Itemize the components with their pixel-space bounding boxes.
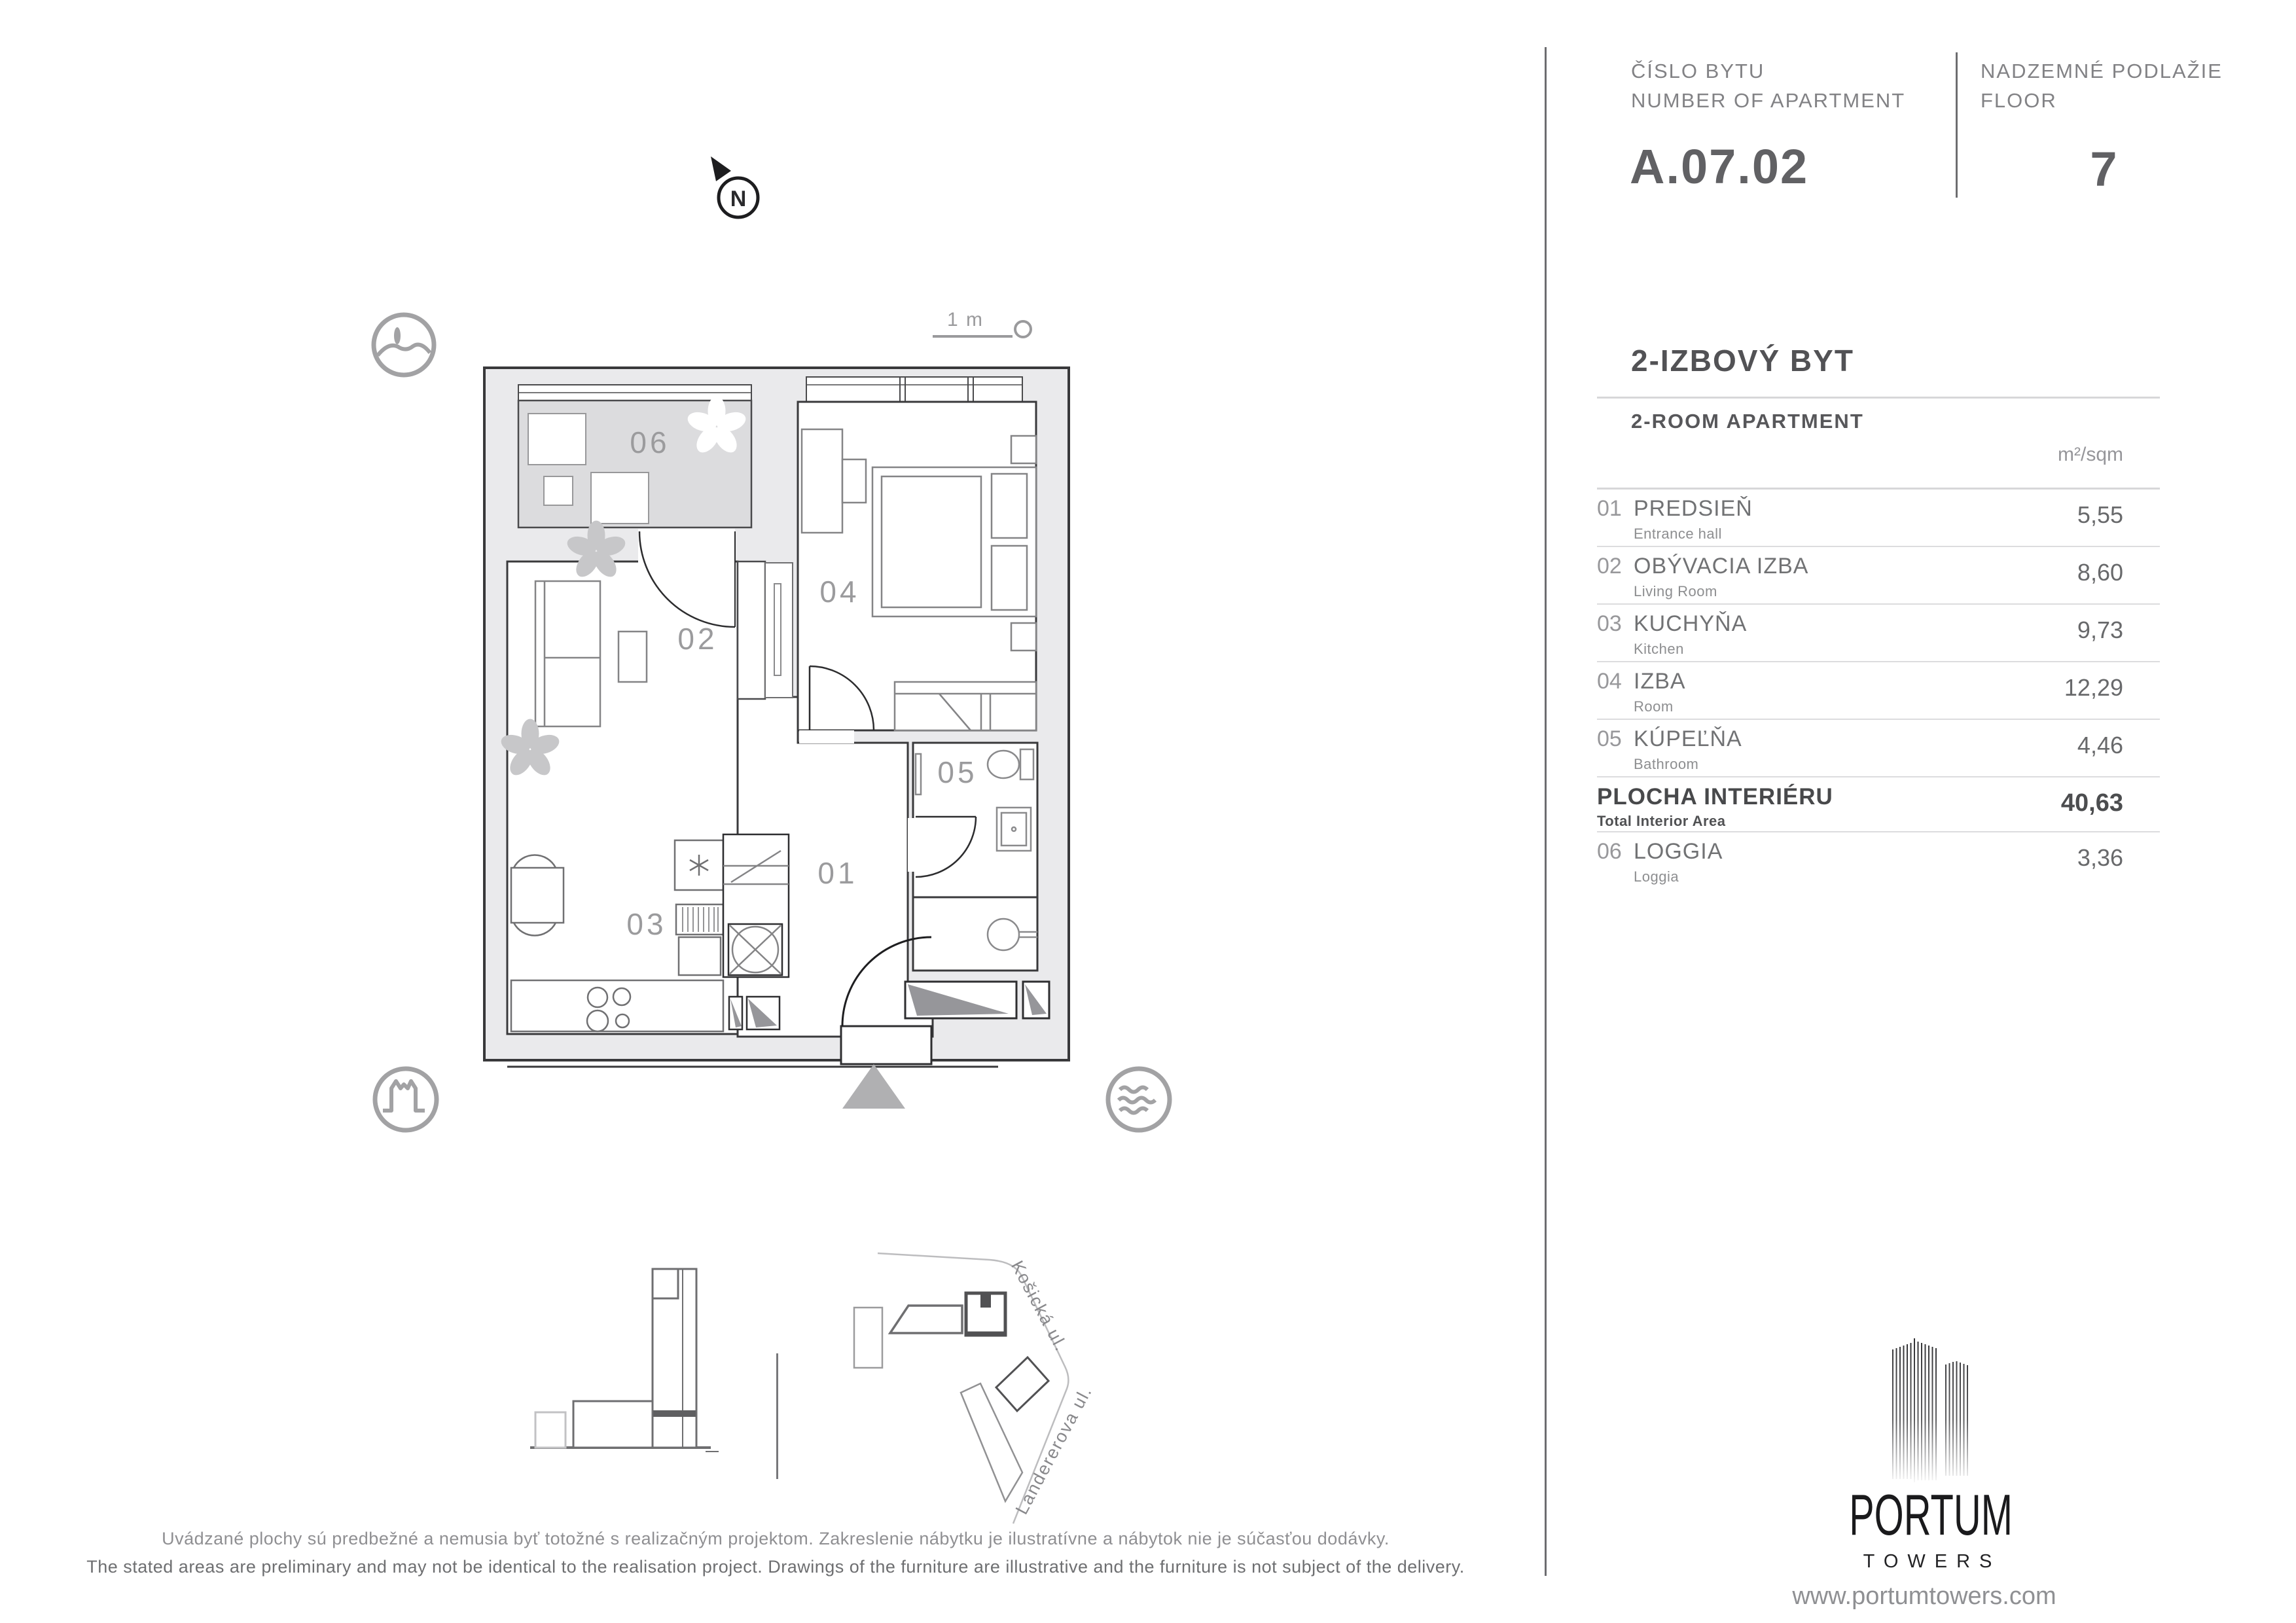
floorplan-sheet: { "header": { "apartment_no_label_sk": "… — [0, 0, 2296, 1623]
tower-elevation — [524, 1257, 720, 1459]
loggia-door-opening — [638, 529, 735, 563]
compass-north-letter: N — [730, 187, 747, 211]
bed-mattress — [882, 476, 981, 607]
low-windows — [905, 982, 1049, 1018]
logo-subtitle: TOWERS — [1863, 1551, 2001, 1572]
bedroom-desk — [802, 429, 842, 533]
title-rule — [1597, 397, 2160, 399]
site-map: Košická ul. Landererova ul. — [838, 1243, 1119, 1538]
site-portum-tower — [966, 1293, 1005, 1335]
apartment-type-title-sk: 2-IZBOVÝ BYT — [1631, 343, 1854, 378]
hill-landmark-icon — [370, 311, 439, 380]
room-label-02: 02 — [677, 622, 717, 656]
river-landmark-icon — [1103, 1063, 1175, 1135]
bedroom-chair — [842, 459, 866, 503]
dishwasher — [676, 904, 723, 935]
site-building-trapezoid — [890, 1306, 962, 1333]
apartment-number-label: ČÍSLO BYTUNUMBER OF APARTMENT — [1631, 56, 1905, 115]
corridor-cabinet-wall — [738, 562, 793, 699]
north-compass-icon: N — [700, 147, 785, 232]
site-building-kite — [996, 1357, 1049, 1411]
floor-label: NADZEMNÉ PODLAŽIEFLOOR — [1981, 56, 2223, 115]
area-value: 3,36 — [2077, 839, 2160, 890]
entrance-arrow — [842, 1064, 905, 1109]
kitchen-cabinet — [679, 937, 721, 975]
scale-bar: 1 m — [926, 301, 1044, 347]
bathroom-door-opening — [908, 818, 916, 872]
elevation-tower-notch — [653, 1269, 678, 1298]
bedroom-wardrobe — [895, 682, 1036, 730]
portum-towers-logo: PORTUM TOWERS — [1852, 1322, 2075, 1584]
washbasin-drain — [1012, 827, 1016, 831]
table-row-entrance-hall: 01 PREDSIEŇ Entrance hall 5,55 — [1597, 490, 2160, 547]
total-area-value: 40,63 — [2061, 784, 2160, 831]
washing-machine — [988, 919, 1019, 950]
room-label-06: 06 — [630, 425, 670, 459]
disclaimer-sk: Uvádzané plochy sú predbežné a nemusia b… — [26, 1529, 1525, 1549]
apartment-type-title-en: 2-ROOM APARTMENT — [1631, 410, 1864, 433]
coffee-table — [619, 632, 647, 682]
area-value: 4,46 — [2077, 726, 2160, 776]
room-label-01: 01 — [817, 856, 857, 890]
site-building — [854, 1308, 882, 1368]
room-bedroom: 04 — [798, 402, 1036, 730]
toilet-bowl — [988, 751, 1019, 778]
street-label-kosicka: Košická ul. — [1007, 1257, 1071, 1355]
floor-plan: 06 04 — [481, 366, 1077, 1119]
disclaimer: Uvádzané plochy sú predbežné a nemusia b… — [26, 1529, 1525, 1577]
table-row-loggia: 06 LOGGIA Loggia 3,36 — [1597, 832, 2160, 890]
floor-number-value: 7 — [2055, 141, 2153, 197]
hall-shelf-column — [723, 834, 789, 977]
room-label-05: 05 — [937, 755, 977, 789]
table-row-total-interior: PLOCHA INTERIÉRU Total Interior Area 40,… — [1597, 777, 2160, 832]
toilet-tank — [1020, 749, 1033, 779]
hob-burner — [588, 988, 607, 1007]
nightstand — [1011, 623, 1036, 651]
nightstand — [1011, 436, 1036, 463]
bathroom-shelf — [916, 754, 921, 794]
bed-pillow — [992, 474, 1027, 538]
elevation-sitemap-divider — [776, 1353, 778, 1479]
disclaimer-en: The stated areas are preliminary and may… — [26, 1557, 1525, 1577]
header-divider — [1956, 52, 1958, 198]
elevation-podium — [573, 1401, 653, 1448]
hob-burner — [613, 988, 630, 1005]
area-value: 5,55 — [2077, 496, 2160, 546]
logo-wordmark: PORTUM — [1852, 1482, 2013, 1547]
hob-burner — [587, 1010, 608, 1031]
elevation-small-building — [535, 1412, 565, 1448]
apartment-number-value: A.07.02 — [1630, 139, 1808, 194]
entrance-door-frame — [841, 1026, 931, 1064]
castle-landmark-icon — [370, 1063, 442, 1135]
small-shafts — [729, 997, 780, 1029]
hob-burner — [616, 1014, 629, 1027]
table-row-kitchen: 03 KUCHYŇA Kitchen 9,73 — [1597, 605, 2160, 662]
main-divider — [1545, 47, 1547, 1576]
website-link[interactable]: www.portumtowers.com — [1708, 1582, 2140, 1611]
dining-table — [511, 868, 564, 923]
unit-header: m²/sqm — [1597, 444, 2123, 466]
room-label-03: 03 — [626, 907, 666, 941]
table-row-room: 04 IZBA Room 12,29 — [1597, 662, 2160, 720]
scale-label: 1 m — [947, 309, 984, 330]
bedroom-window — [806, 377, 1022, 402]
area-value: 9,73 — [2077, 611, 2160, 661]
elevation-highlighted-floor — [653, 1410, 696, 1417]
table-row-living-room: 02 OBÝVACIA IZBA Living Room 8,60 — [1597, 547, 2160, 605]
table-row-bathroom: 05 KÚPEĽŇA Bathroom 4,46 — [1597, 720, 2160, 777]
bedroom-door-opening — [799, 730, 854, 743]
area-table: 01 PREDSIEŇ Entrance hall 5,55 02 OBÝVAC… — [1597, 488, 2160, 890]
room-loggia: 06 — [518, 397, 751, 528]
area-value: 8,60 — [2077, 554, 2160, 603]
area-value: 12,29 — [2064, 669, 2160, 719]
logo-towers-graphic — [1893, 1338, 1967, 1482]
room-label-04: 04 — [819, 575, 859, 609]
bed-pillow — [992, 546, 1027, 610]
scale-end-circle — [1015, 321, 1031, 337]
